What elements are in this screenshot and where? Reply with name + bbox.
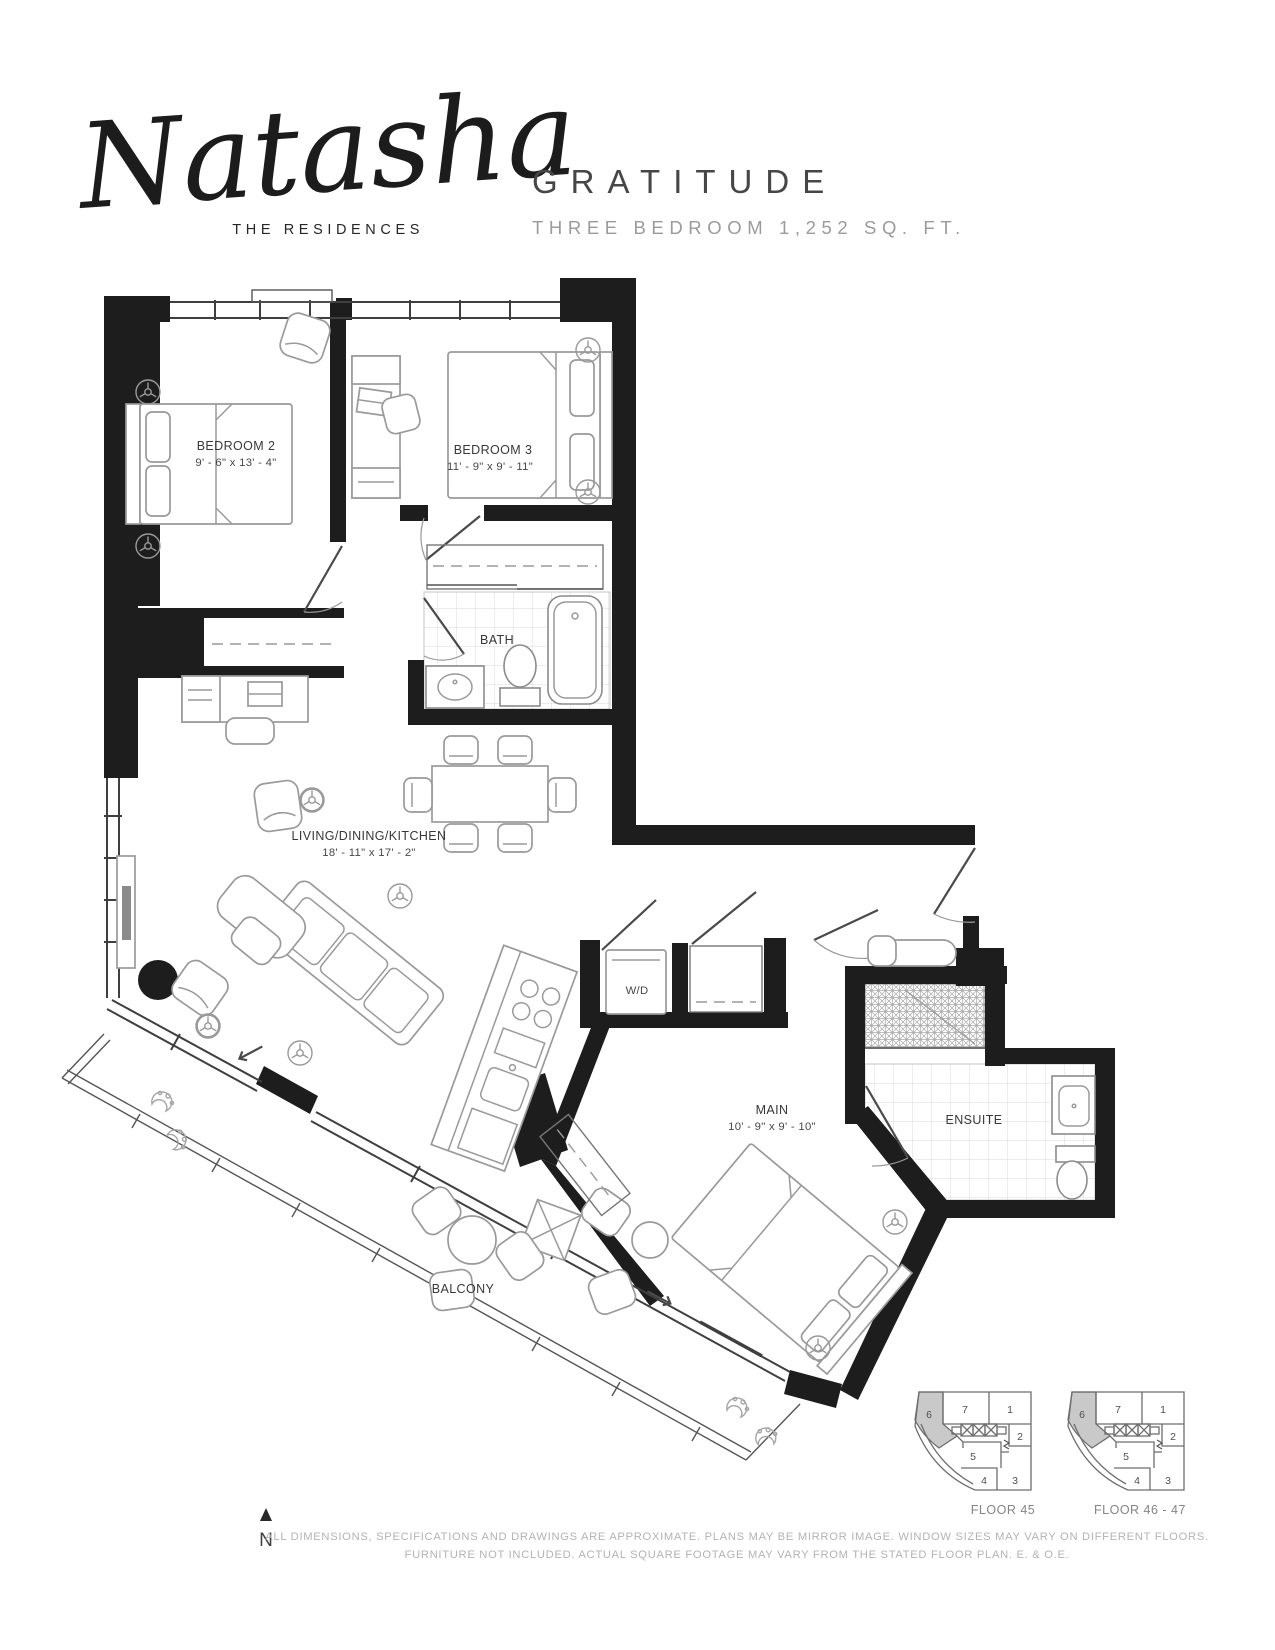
plan-title: GRATITUDE xyxy=(532,163,837,200)
bedroom3-dims: 11' - 9" x 9' - 11" xyxy=(447,461,533,473)
plan-subtitle: THREE BEDROOM 1,252 SQ. FT. xyxy=(532,217,966,238)
keyplan-floor-45-label: FLOOR 45 xyxy=(971,1503,1035,1517)
header: Natasha THE RESIDENCES GRATITUDE THREE B… xyxy=(71,64,966,238)
main-label: MAIN xyxy=(756,1103,789,1117)
tv xyxy=(122,886,131,940)
main-dims: 10' - 9" x 9' - 10" xyxy=(728,1121,816,1133)
floor-plan: W/D xyxy=(62,278,1115,1460)
bath-label: BATH xyxy=(480,633,514,647)
north-arrow-icon xyxy=(260,1508,272,1521)
ensuite-label: ENSUITE xyxy=(946,1113,1003,1127)
living-label: LIVING/DINING/KITCHEN xyxy=(292,829,447,843)
structural-column xyxy=(138,960,178,1000)
keyplan-floor-46-47 xyxy=(1068,1392,1184,1490)
floorplan-page: 6 7 1 2 5 4 3 Natasha THE RESIDENCES GRA… xyxy=(0,0,1275,1650)
logo-subtitle: THE RESIDENCES xyxy=(232,222,424,238)
bedroom3-label: BEDROOM 3 xyxy=(454,443,533,457)
wd-label: W/D xyxy=(626,985,649,997)
keyplan-floor-45 xyxy=(915,1392,1031,1490)
keyplan-floor-46-47-label: FLOOR 46 - 47 xyxy=(1094,1503,1186,1517)
key-plans: FLOOR 45 FLOOR 46 - 47 xyxy=(915,1392,1186,1517)
disclaimer-line2: FURNITURE NOT INCLUDED. ACTUAL SQUARE FO… xyxy=(405,1549,1070,1561)
north-arrow: N xyxy=(259,1508,273,1551)
bedroom2-label: BEDROOM 2 xyxy=(197,439,276,453)
bedroom2-dims: 9' - 6" x 13' - 4" xyxy=(195,457,276,469)
room-labels: BEDROOM 2 9' - 6" x 13' - 4" BEDROOM 3 1… xyxy=(195,439,1002,1296)
disclaimer: ALL DIMENSIONS, SPECIFICATIONS AND DRAWI… xyxy=(265,1531,1208,1561)
floorplan-canvas: 6 7 1 2 5 4 3 Natasha THE RESIDENCES GRA… xyxy=(0,0,1275,1650)
natasha-logo: Natasha xyxy=(71,64,581,237)
living-dims: 18' - 11" x 17' - 2" xyxy=(322,847,415,859)
balcony-label: BALCONY xyxy=(432,1282,495,1296)
disclaimer-line1: ALL DIMENSIONS, SPECIFICATIONS AND DRAWI… xyxy=(265,1531,1208,1543)
bedroom3-furniture xyxy=(352,338,612,504)
